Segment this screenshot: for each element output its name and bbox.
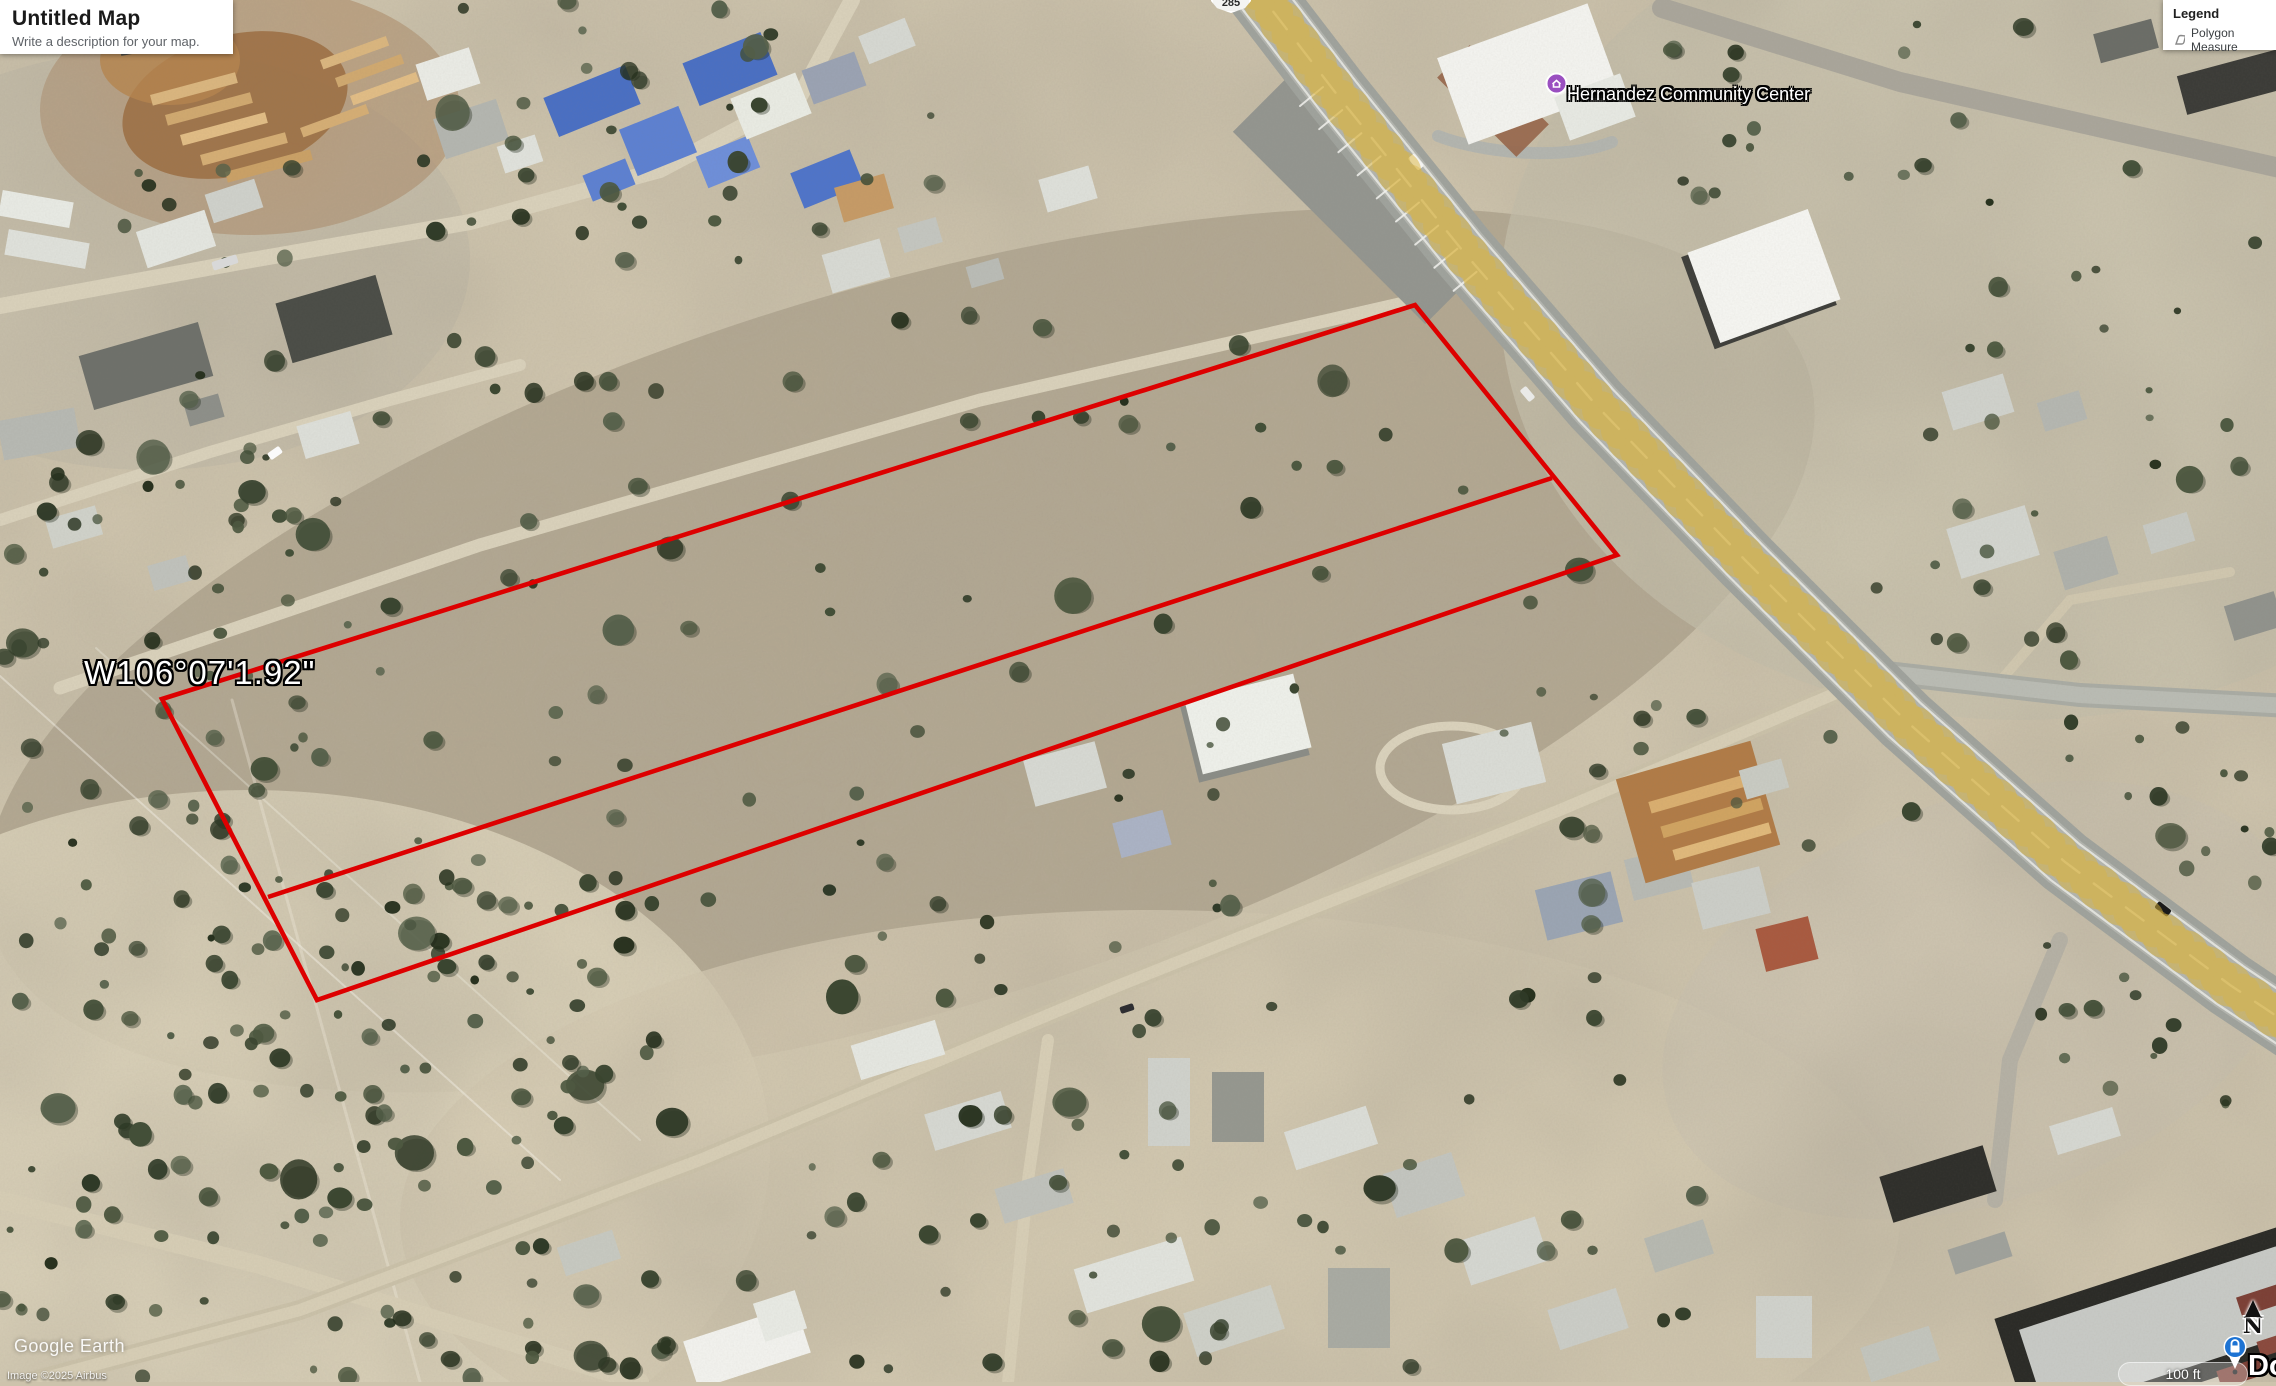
map-title: Untitled Map	[12, 7, 221, 31]
lock-body-icon	[2231, 1346, 2240, 1353]
scale-bar: 100 ft	[2118, 1362, 2248, 1386]
community-center-poi-icon[interactable]	[1545, 72, 1568, 95]
imagery-copyright: Image ©2025 Airbus	[7, 1370, 107, 1382]
map-subtitle[interactable]: Write a description for your map.	[12, 34, 221, 49]
poi-circle	[1547, 74, 1567, 94]
poi-label-clipped: Do	[2248, 1350, 2276, 1383]
legend-item-label: Polygon Measure	[2191, 26, 2266, 54]
legend-panel: Legend Polygon Measure	[2163, 0, 2276, 50]
google-earth-watermark: Google Earth	[14, 1336, 125, 1357]
map-title-panel[interactable]: Untitled Map Write a description for you…	[0, 0, 233, 54]
legend-item-polygon-measure[interactable]: Polygon Measure	[2173, 26, 2266, 54]
coordinate-label: W106°07'1.92"	[84, 654, 315, 692]
polygon-icon	[2173, 33, 2185, 47]
north-arrow-icon	[2245, 1300, 2261, 1317]
satellite-canvas	[0, 0, 2276, 1382]
north-compass[interactable]: N	[2236, 1300, 2270, 1337]
legend-title: Legend	[2173, 6, 2266, 21]
scale-bar-text: 100 ft	[2165, 1366, 2200, 1382]
community-center-label[interactable]: Hernandez Community Center	[1567, 84, 1810, 105]
texture-grain	[0, 0, 2276, 1382]
google-earth-viewport: { "map_panel": { "title": "Untitled Map"…	[0, 0, 2276, 1382]
